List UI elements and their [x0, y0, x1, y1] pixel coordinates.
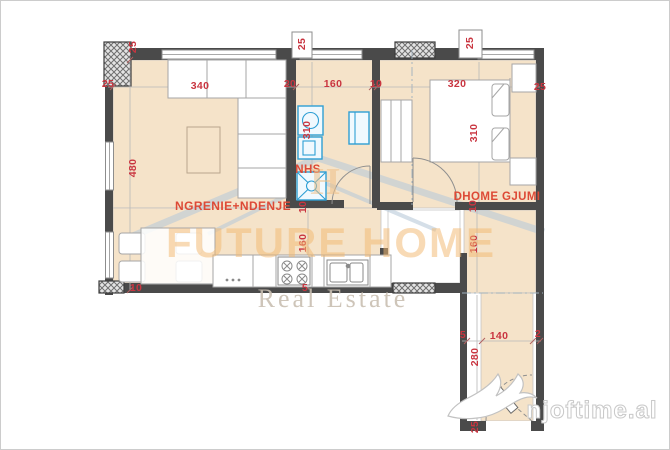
dining-table — [141, 228, 215, 284]
void-area — [388, 210, 460, 283]
floorplan-drawing — [0, 0, 670, 450]
stove — [278, 257, 310, 285]
floorplan-image: NGRENIE+NDENJE NHS DHOME GJUMI 252534020… — [0, 0, 670, 450]
wardrobe — [381, 100, 412, 162]
toilet — [298, 137, 322, 159]
nightstand-top — [512, 64, 536, 92]
entrance-opening — [486, 421, 531, 431]
sink — [327, 260, 368, 285]
shower-cabin — [349, 112, 369, 144]
nightstand-bottom — [510, 158, 536, 185]
bed — [430, 78, 510, 164]
kitchen-counter — [213, 255, 391, 287]
washing-machine — [298, 106, 323, 135]
